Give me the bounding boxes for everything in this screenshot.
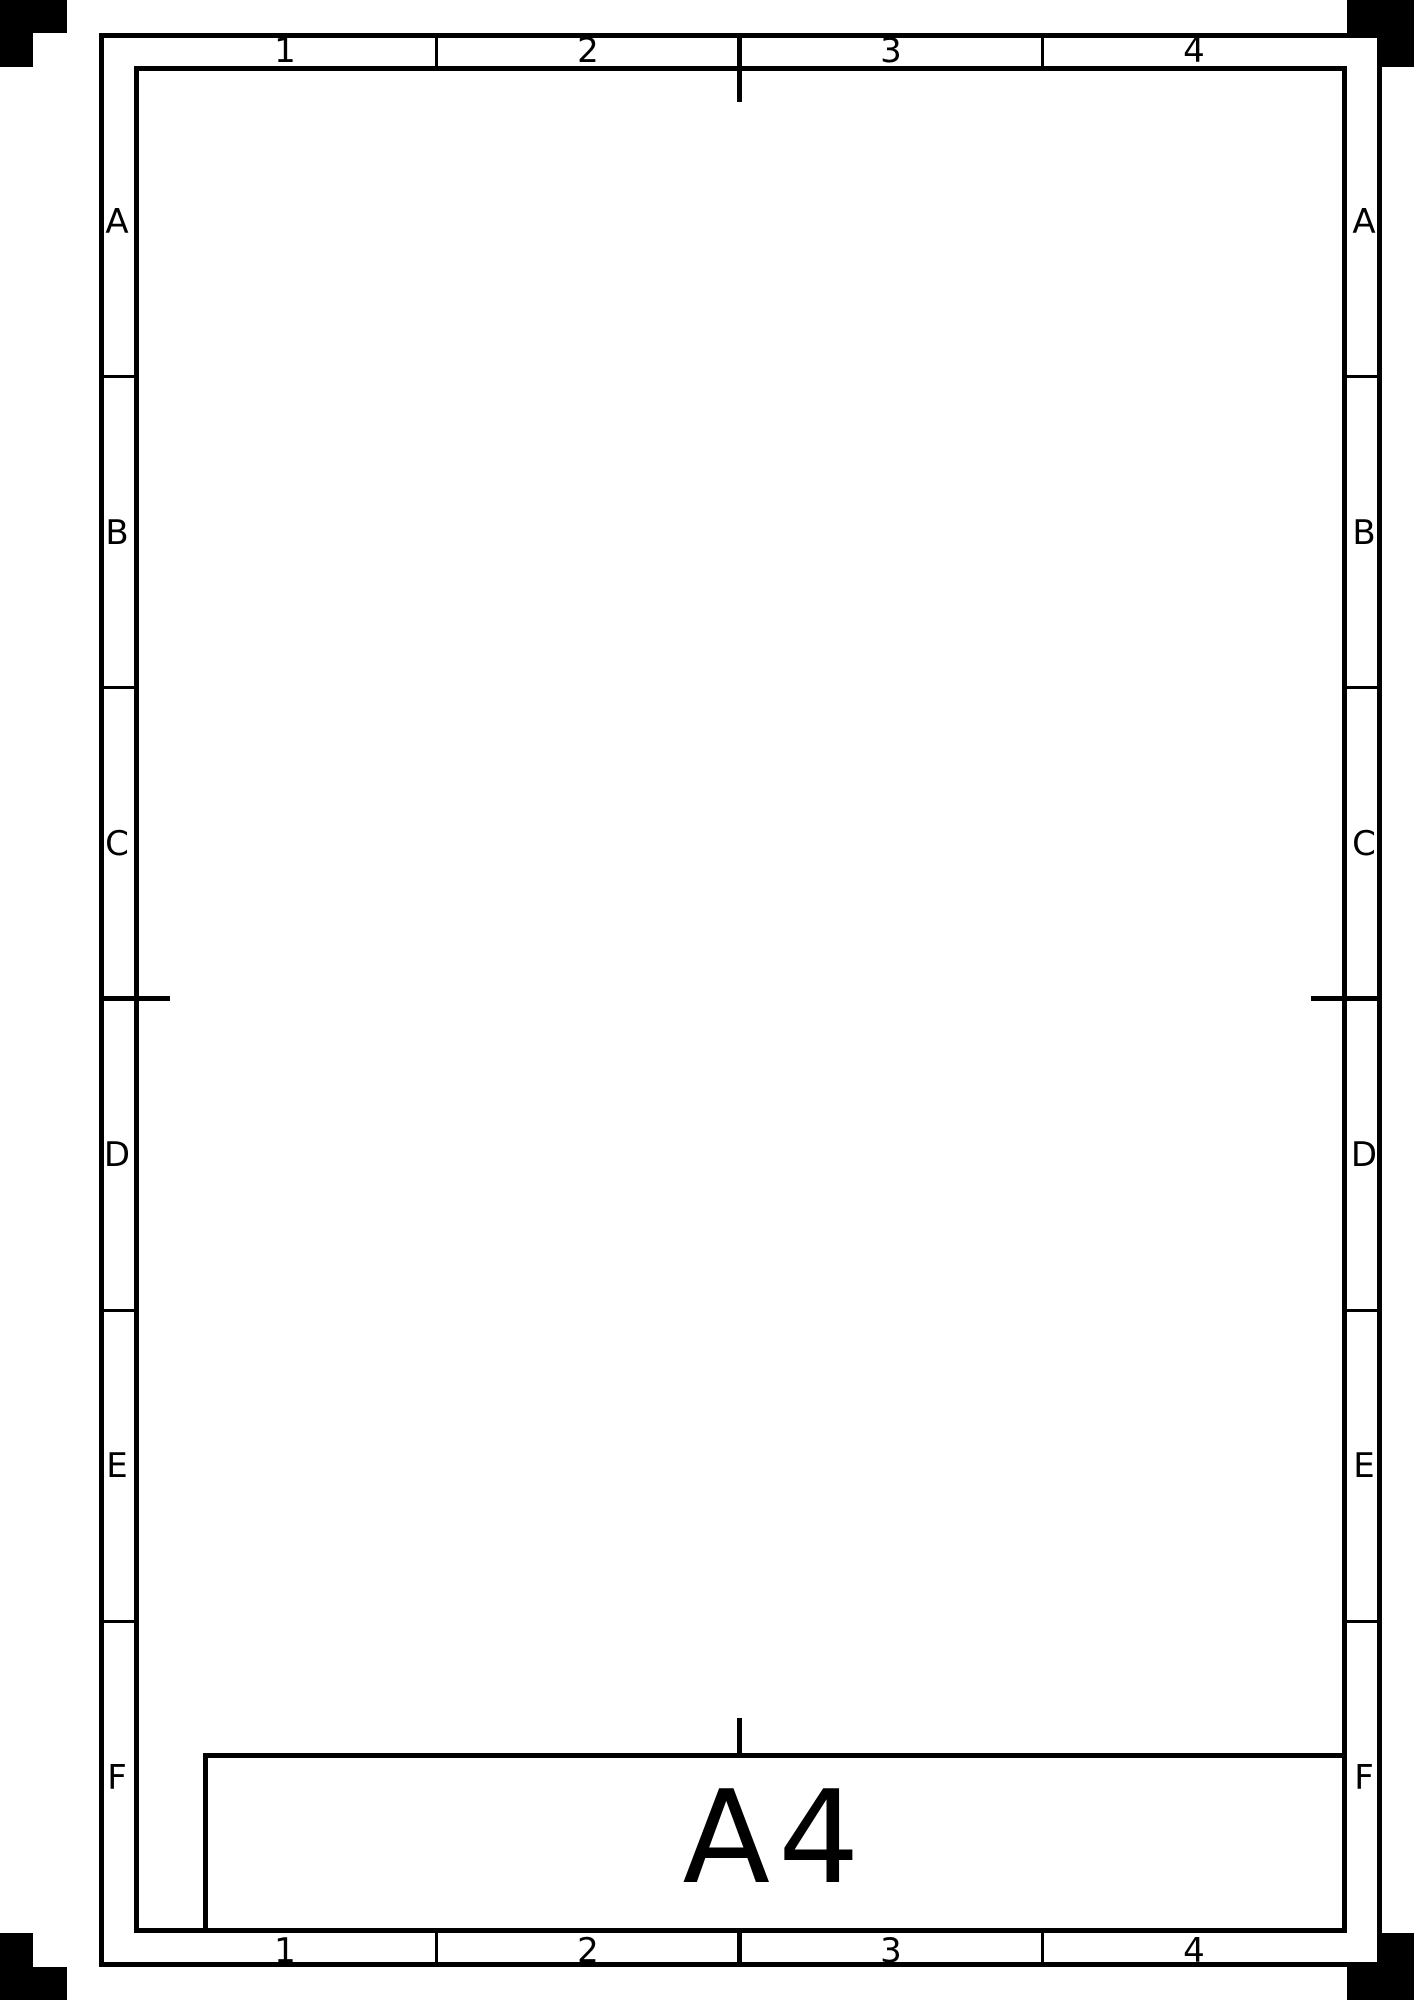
grid-label-top-col-4: 4 xyxy=(1183,34,1205,68)
left-band-divider-d-e xyxy=(99,1309,134,1312)
crop-mark-top-right-vertical xyxy=(1381,0,1414,67)
right-band-divider-e-f xyxy=(1347,1620,1382,1623)
grid-label-right-row-a: A xyxy=(1352,205,1375,239)
grid-label-top-col-3: 3 xyxy=(880,34,902,68)
left-band-divider-b-c xyxy=(99,686,134,689)
right-band-divider-b-c xyxy=(1347,686,1382,689)
center-mark-left xyxy=(99,996,170,1001)
bottom-band-divider-3-4 xyxy=(1041,1933,1044,1967)
crop-mark-bottom-left-vertical xyxy=(0,1933,33,2000)
center-mark-top xyxy=(737,33,742,102)
top-band-divider-1-2 xyxy=(435,33,438,68)
grid-label-right-row-d: D xyxy=(1351,1138,1377,1172)
grid-label-left-row-b: B xyxy=(105,516,128,550)
grid-label-top-col-1: 1 xyxy=(274,34,296,68)
left-band-divider-e-f xyxy=(99,1620,134,1623)
right-band-divider-d-e xyxy=(1347,1309,1382,1312)
grid-label-bottom-col-4: 4 xyxy=(1183,1934,1205,1968)
bottom-band-divider-1-2 xyxy=(435,1933,438,1967)
bottom-band-divider-2-3 xyxy=(737,1933,742,1967)
left-band-divider-a-b xyxy=(99,375,134,378)
grid-label-right-row-b: B xyxy=(1352,516,1375,550)
right-band-divider-a-b xyxy=(1347,375,1382,378)
crop-mark-top-left-vertical xyxy=(0,0,33,67)
grid-label-left-row-e: E xyxy=(106,1449,127,1483)
title-block: A4 xyxy=(203,1753,1347,1933)
drawing-sheet: 1 2 3 4 1 2 3 4 A B C D E F A B C D E F … xyxy=(0,0,1414,2000)
grid-label-bottom-col-2: 2 xyxy=(577,1934,599,1968)
grid-label-right-row-e: E xyxy=(1353,1449,1374,1483)
center-mark-right xyxy=(1311,996,1382,1001)
grid-label-bottom-col-1: 1 xyxy=(274,1934,296,1968)
inner-frame xyxy=(134,66,1347,1933)
grid-label-right-row-c: C xyxy=(1352,827,1376,861)
grid-label-left-row-d: D xyxy=(104,1138,130,1172)
top-band-divider-3-4 xyxy=(1041,33,1044,68)
grid-label-bottom-col-3: 3 xyxy=(880,1934,902,1968)
crop-mark-bottom-right-vertical xyxy=(1381,1933,1414,2000)
grid-label-left-row-a: A xyxy=(105,205,128,239)
sheet-size-label: A4 xyxy=(683,1775,868,1903)
grid-label-top-col-2: 2 xyxy=(577,34,599,68)
grid-label-left-row-f: F xyxy=(107,1761,127,1795)
grid-label-right-row-f: F xyxy=(1354,1761,1374,1795)
center-mark-bottom xyxy=(737,1718,742,1753)
grid-label-left-row-c: C xyxy=(105,827,129,861)
